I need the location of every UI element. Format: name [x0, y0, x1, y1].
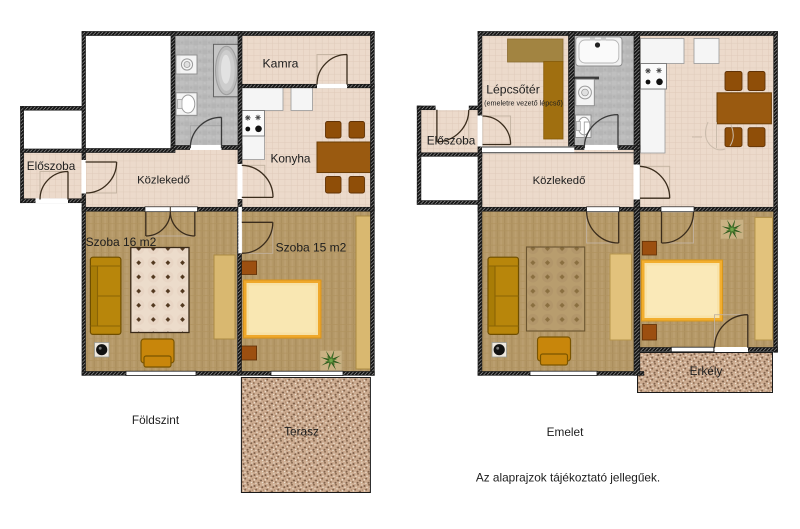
svg-text:Előszoba: Előszoba [427, 134, 476, 148]
svg-text:Közlekedő: Közlekedő [137, 175, 190, 187]
svg-text:Emelet: Emelet [547, 425, 584, 439]
svg-text:Az alaprajzok tájékoztató jell: Az alaprajzok tájékoztató jellegűek. [476, 471, 660, 485]
svg-text:Terasz: Terasz [284, 425, 319, 439]
svg-text:Erkély: Erkély [690, 364, 723, 378]
svg-text:Kamra: Kamra [263, 57, 299, 71]
svg-text:Előszoba: Előszoba [27, 159, 76, 173]
svg-text:Közlekedő: Közlekedő [533, 175, 586, 187]
svg-text:Szoba 15 m2: Szoba 15 m2 [276, 241, 347, 255]
svg-text:Konyha: Konyha [270, 152, 310, 166]
svg-text:(emeletre vezető lépcső): (emeletre vezető lépcső) [484, 99, 563, 108]
svg-text:Lépcsőtér: Lépcsőtér [486, 83, 540, 97]
svg-text:Földszint: Földszint [132, 413, 180, 427]
svg-text:Szoba 16 m2: Szoba 16 m2 [86, 235, 157, 249]
